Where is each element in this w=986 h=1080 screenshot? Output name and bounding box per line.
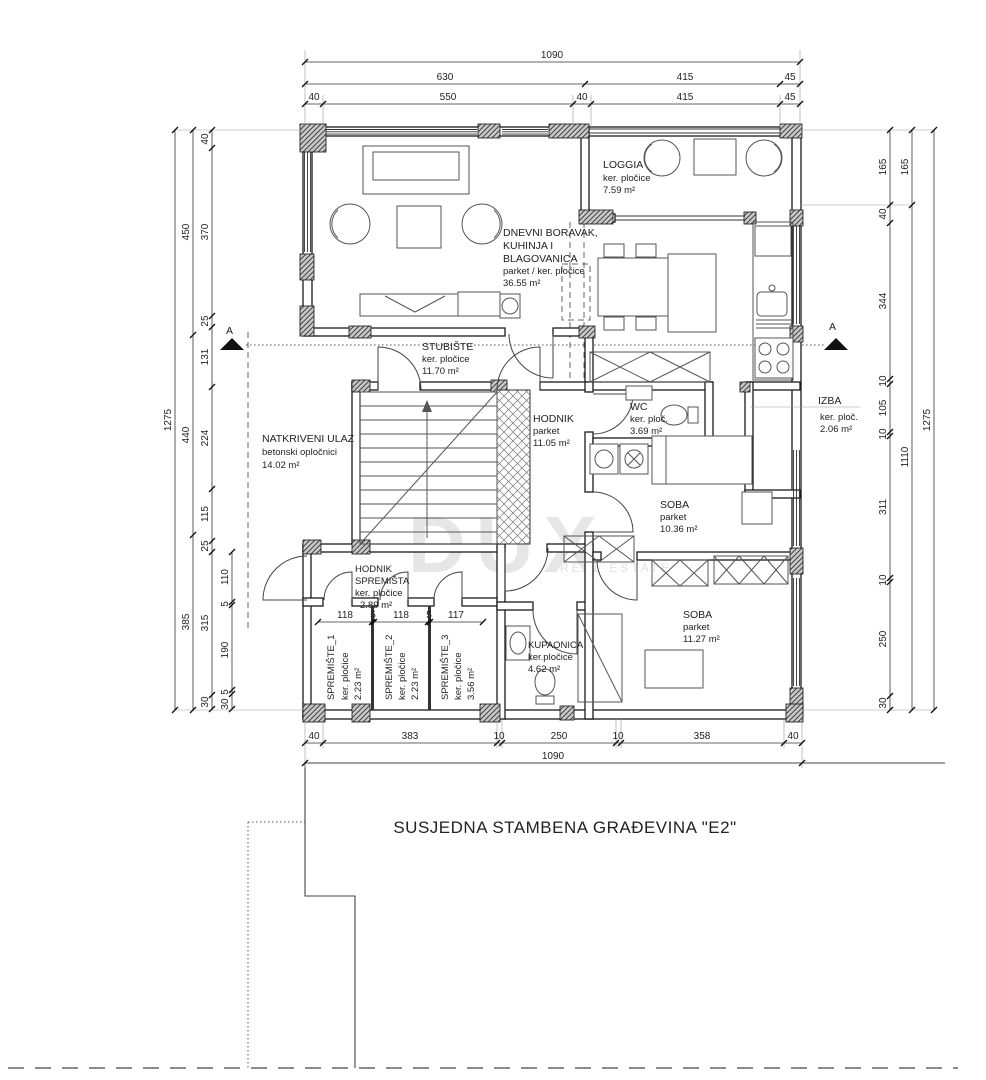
tv-cabinet xyxy=(360,292,520,318)
label-natkriveni-ulaz: NATKRIVENI ULAZ betonski opločnici 14.02… xyxy=(262,433,355,471)
coffee-table xyxy=(397,206,441,248)
svg-text:SPREMIŠTE_1: SPREMIŠTE_1 xyxy=(326,635,337,700)
svg-text:190: 190 xyxy=(220,641,231,658)
svg-text:ker. pločice: ker. pločice xyxy=(397,652,408,700)
living-room-furniture xyxy=(330,146,520,318)
svg-text:DNEVNI BORAVAK,: DNEVNI BORAVAK, xyxy=(503,227,598,239)
storage-hall-door xyxy=(263,556,307,600)
fridge xyxy=(755,226,791,256)
svg-text:30: 30 xyxy=(200,696,211,708)
svg-text:11.70 m²: 11.70 m² xyxy=(422,366,459,377)
kitchen-island xyxy=(668,254,716,332)
svg-text:224: 224 xyxy=(200,429,211,446)
svg-text:KUHINJA I: KUHINJA I xyxy=(503,240,553,252)
svg-text:315: 315 xyxy=(200,614,211,631)
svg-text:SPREMIŠTE_2: SPREMIŠTE_2 xyxy=(384,635,395,700)
svg-text:ker. pločice: ker. pločice xyxy=(355,588,403,599)
svg-text:LOGGIA: LOGGIA xyxy=(603,159,643,171)
svg-text:40: 40 xyxy=(576,92,588,103)
svg-text:450: 450 xyxy=(181,223,192,240)
dining-table xyxy=(598,258,670,316)
svg-text:1090: 1090 xyxy=(542,751,565,762)
svg-text:5: 5 xyxy=(426,610,432,621)
svg-text:betonski opločnici: betonski opločnici xyxy=(262,447,337,458)
svg-text:1110: 1110 xyxy=(900,446,911,467)
svg-text:415: 415 xyxy=(677,92,694,103)
svg-text:2.06 m²: 2.06 m² xyxy=(820,424,852,435)
svg-text:30: 30 xyxy=(878,697,889,709)
svg-text:SPREMIŠTA: SPREMIŠTA xyxy=(355,576,410,587)
svg-text:30: 30 xyxy=(220,698,231,710)
label-hodnik: HODNIK parket 11.05 m² xyxy=(533,413,574,449)
svg-text:40: 40 xyxy=(308,92,320,103)
section-marker-left: A xyxy=(220,325,244,350)
wc-basin xyxy=(626,386,652,400)
label-wc: WC ker. ploč. 3.69 m² xyxy=(630,401,668,437)
svg-text:10.36 m²: 10.36 m² xyxy=(660,524,698,535)
svg-text:440: 440 xyxy=(181,426,192,443)
svg-text:10: 10 xyxy=(878,375,889,387)
svg-text:parket: parket xyxy=(660,512,687,523)
svg-text:14.02 m²: 14.02 m² xyxy=(262,460,300,471)
label-spremiste3: SPREMIŠTE_3 ker. pločice 3.56 m² xyxy=(440,635,477,700)
svg-text:HODNIK: HODNIK xyxy=(533,413,574,425)
living-door xyxy=(509,334,553,378)
svg-text:370: 370 xyxy=(200,223,211,240)
svg-text:415: 415 xyxy=(677,72,694,83)
svg-text:385: 385 xyxy=(181,613,192,630)
svg-text:2.23 m²: 2.23 m² xyxy=(410,668,421,700)
svg-text:1275: 1275 xyxy=(163,408,174,431)
floor-plan-drawing: DUX REAL ESTATE xyxy=(0,0,986,1080)
kitchen-dining-furniture xyxy=(598,222,793,380)
svg-text:STUBIŠTE: STUBIŠTE xyxy=(422,340,473,353)
svg-text:ker. pločice: ker. pločice xyxy=(453,652,464,700)
neighbor-building-outline xyxy=(8,763,958,1068)
svg-text:250: 250 xyxy=(551,731,568,742)
spremiste1-door xyxy=(324,572,352,600)
svg-text:165: 165 xyxy=(900,158,911,175)
label-hodnik-spremista: HODNIK SPREMIŠTA ker. pločice 2.89 m² xyxy=(355,564,410,611)
loggia-chair-left xyxy=(644,140,680,176)
stove xyxy=(755,338,793,378)
svg-text:25: 25 xyxy=(200,315,211,327)
label-spremiste2: SPREMIŠTE_2 ker. pločice 2.23 m² xyxy=(384,635,421,700)
svg-text:550: 550 xyxy=(440,92,457,103)
loggia-chair-right xyxy=(746,140,782,176)
svg-text:5: 5 xyxy=(220,601,231,607)
label-loggia: LOGGIA ker. pločice 7.59 m² xyxy=(603,159,651,196)
svg-text:4.62 m²: 4.62 m² xyxy=(528,664,560,675)
floor-plan-canvas: DUX REAL ESTATE xyxy=(0,0,986,1080)
armchair-right xyxy=(462,204,502,244)
svg-text:10: 10 xyxy=(878,428,889,440)
installation-shaft xyxy=(497,390,530,544)
svg-text:630: 630 xyxy=(437,72,454,83)
svg-text:344: 344 xyxy=(878,292,889,309)
svg-text:HODNIK: HODNIK xyxy=(355,564,393,575)
svg-text:SOBA: SOBA xyxy=(683,609,712,621)
svg-text:1275: 1275 xyxy=(922,408,933,431)
wardrobe-kitchen-wall xyxy=(590,352,710,382)
svg-text:5: 5 xyxy=(370,610,376,621)
svg-text:165: 165 xyxy=(878,158,889,175)
svg-text:SOBA: SOBA xyxy=(660,499,689,511)
svg-text:IZBA: IZBA xyxy=(818,395,841,407)
svg-text:ker. ploč.: ker. ploč. xyxy=(820,412,858,423)
svg-text:BLAGOVANICA: BLAGOVANICA xyxy=(503,253,578,265)
loggia-table xyxy=(694,139,736,175)
label-spremiste1: SPREMIŠTE_1 ker. pločice 2.23 m² xyxy=(326,635,364,700)
svg-text:40: 40 xyxy=(878,208,889,220)
armchair-left xyxy=(330,204,370,244)
svg-text:110: 110 xyxy=(220,569,231,585)
svg-text:11.27 m²: 11.27 m² xyxy=(683,634,720,645)
svg-text:parket: parket xyxy=(683,622,710,633)
svg-text:40: 40 xyxy=(308,731,320,742)
svg-text:358: 358 xyxy=(694,731,711,742)
section-label-left: A xyxy=(226,325,233,337)
svg-text:ker. pločice: ker. pločice xyxy=(422,354,470,365)
svg-text:10: 10 xyxy=(878,574,889,586)
svg-text:parket: parket xyxy=(533,426,560,437)
bed-soba1 xyxy=(652,436,752,484)
label-soba1: SOBA parket 10.36 m² xyxy=(660,499,698,535)
svg-text:105: 105 xyxy=(878,399,889,416)
bath-basin xyxy=(506,626,530,660)
svg-text:131: 131 xyxy=(200,348,211,365)
svg-text:ker. ploč.: ker. ploč. xyxy=(630,414,668,425)
sink xyxy=(756,285,792,328)
svg-text:25: 25 xyxy=(200,540,211,552)
svg-text:36.55 m²: 36.55 m² xyxy=(503,278,541,289)
svg-text:ker. pločice: ker. pločice xyxy=(340,652,351,700)
svg-text:5: 5 xyxy=(220,689,231,695)
label-kupaonica: KUPAONICA ker.pločice 4.62 m² xyxy=(528,640,584,675)
svg-text:3.69 m²: 3.69 m² xyxy=(630,426,662,437)
svg-text:10: 10 xyxy=(493,731,505,742)
svg-text:3.56 m²: 3.56 m² xyxy=(466,668,477,700)
sofa xyxy=(363,146,469,194)
svg-text:11.05 m²: 11.05 m² xyxy=(533,438,570,449)
svg-text:10: 10 xyxy=(612,731,624,742)
svg-text:45: 45 xyxy=(784,92,796,103)
svg-text:45: 45 xyxy=(784,72,796,83)
desk-soba1 xyxy=(742,492,772,524)
washing-machine xyxy=(590,444,618,474)
section-label-right: A xyxy=(829,321,836,333)
dryer xyxy=(620,444,648,474)
svg-text:WC: WC xyxy=(630,401,648,413)
label-izba: IZBA ker. ploč. 2.06 m² xyxy=(750,395,860,435)
svg-text:40: 40 xyxy=(200,133,211,145)
svg-text:250: 250 xyxy=(878,630,889,647)
entrance-door xyxy=(378,347,421,390)
svg-text:7.59 m²: 7.59 m² xyxy=(603,185,635,196)
section-marker-right: A xyxy=(824,321,848,350)
svg-text:115: 115 xyxy=(200,506,211,522)
label-soba2: SOBA parket 11.27 m² xyxy=(683,609,720,645)
svg-text:ker.pločice: ker.pločice xyxy=(528,652,573,663)
svg-text:118: 118 xyxy=(393,610,409,621)
svg-text:117: 117 xyxy=(448,610,464,621)
svg-text:SPREMIŠTE_3: SPREMIŠTE_3 xyxy=(440,635,451,700)
svg-text:1090: 1090 xyxy=(541,50,564,61)
neighbor-building-label: SUSJEDNA STAMBENA GRAĐEVINA "E2" xyxy=(393,818,736,837)
svg-text:118: 118 xyxy=(337,610,353,621)
label-stubiste: STUBIŠTE ker. pločice 11.70 m² xyxy=(422,340,473,377)
loggia-furniture xyxy=(644,139,782,176)
svg-text:2.23 m²: 2.23 m² xyxy=(353,668,364,700)
svg-text:2.89 m²: 2.89 m² xyxy=(360,600,392,611)
svg-text:311: 311 xyxy=(878,499,889,515)
svg-text:40: 40 xyxy=(787,731,799,742)
svg-text:NATKRIVENI ULAZ: NATKRIVENI ULAZ xyxy=(262,433,355,445)
svg-text:383: 383 xyxy=(402,731,419,742)
svg-text:ker. pločice: ker. pločice xyxy=(603,173,651,184)
svg-text:parket / ker. pločice: parket / ker. pločice xyxy=(503,266,585,277)
svg-text:KUPAONICA: KUPAONICA xyxy=(528,640,584,651)
bed-soba2 xyxy=(645,650,703,688)
